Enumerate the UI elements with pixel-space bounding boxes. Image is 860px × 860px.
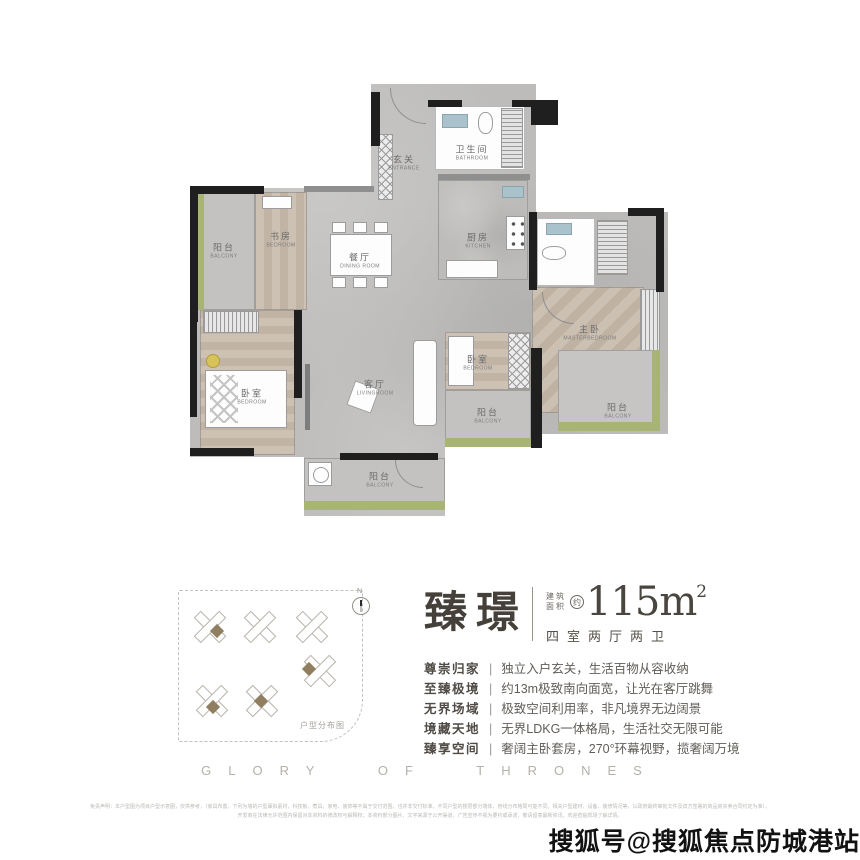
label-en: BALCONY xyxy=(210,254,237,259)
wall-segment xyxy=(190,186,198,322)
label-balcony-right: 阳台BALCONY xyxy=(602,401,634,420)
decor-plant-icon xyxy=(206,354,220,368)
building-icon xyxy=(192,682,232,720)
label-zh: 餐厅 xyxy=(337,251,384,264)
label-zh: 卫生间 xyxy=(453,143,491,156)
label-zh: 客厅 xyxy=(353,378,396,391)
label-master: 主卧MASTERBEDROOM xyxy=(559,323,622,342)
master-wardrobe xyxy=(640,289,660,351)
area-prefix-top: 建筑 xyxy=(546,592,566,602)
label-en: BALCONY xyxy=(474,419,501,424)
area-prefix: 建筑 面积 xyxy=(546,592,566,612)
bg-mask xyxy=(190,84,371,188)
feature-tag: 境藏天地 xyxy=(424,718,480,737)
unit-info: 臻璟 建筑 面积 约 115m 2 四室两厅两卫 尊崇归家 | 独立入 xyxy=(424,582,744,758)
balcony-right-planter-r xyxy=(652,350,660,431)
label-en: BATHROOM xyxy=(456,156,488,161)
bedroom-mid-wardrobe xyxy=(508,333,530,389)
kitchen-sink-icon xyxy=(502,186,524,198)
bedroom-left-wardrobe xyxy=(203,311,259,333)
feature-row: 臻享空间 | 奢阔主卧套房，270°环幕视野，揽奢阔万境 xyxy=(424,738,744,758)
label-balcony-left: 阳台BALCONY xyxy=(208,241,240,260)
feature-desc: 无界LDKG一体格局，生活社交无限可能 xyxy=(501,718,723,737)
bg-mask xyxy=(190,457,304,519)
feature-desc: 约13m极致南向面宽，让光在客厅跳舞 xyxy=(501,678,713,697)
compass-north-label: N xyxy=(357,588,362,595)
area-prefix-bottom: 面积 xyxy=(546,602,566,612)
label-en: ENTRANCE xyxy=(388,166,419,171)
page: 玄关ENTRANCE 卫生间BATHROOM 阳台BALCONY 书房BEDRO… xyxy=(0,0,860,860)
wall-segment xyxy=(529,212,537,290)
ensuite-shower-area xyxy=(597,220,628,275)
floor-plan: 玄关ENTRANCE 卫生间BATHROOM 阳台BALCONY 书房BEDRO… xyxy=(190,84,670,519)
feature-separator: | xyxy=(489,702,492,716)
room-study xyxy=(255,192,307,310)
label-en: BEDROOM xyxy=(237,400,266,405)
feature-desc: 奢阔主卧套房，270°环幕视野，揽奢阔万境 xyxy=(501,738,739,757)
wall-segment xyxy=(656,208,664,292)
chair-icon xyxy=(353,277,367,288)
toilet-icon xyxy=(478,112,493,134)
desk-icon xyxy=(262,196,292,209)
unit-name: 臻璟 xyxy=(424,592,528,635)
label-en: BALCONY xyxy=(604,414,631,419)
feature-separator: | xyxy=(489,722,492,736)
label-en: DINING ROOM xyxy=(340,264,380,269)
slogan: GLORY OF THRONES xyxy=(0,763,860,778)
disclaimer: 免责声明：本户型图为项目户型示意图，仅供参考，（家具布置、下列为墙的户型摹拟素材… xyxy=(70,803,790,821)
label-dining: 餐厅DINING ROOM xyxy=(337,251,384,270)
label-bathroom: 卫生间BATHROOM xyxy=(453,143,491,162)
building-icon xyxy=(190,608,230,646)
label-zh: 阳台 xyxy=(602,401,634,414)
feature-tag: 至臻极境 xyxy=(424,678,480,697)
building-icon xyxy=(240,608,280,646)
washer-drum-icon xyxy=(313,467,329,483)
shower-area xyxy=(501,108,523,168)
wall-segment xyxy=(531,100,558,125)
feature-tag: 臻享空间 xyxy=(424,738,480,757)
label-zh: 卧室 xyxy=(461,353,496,366)
wall-segment xyxy=(190,448,254,456)
wall-segment xyxy=(190,320,197,417)
compass-needle xyxy=(360,600,362,612)
balcony-bottom-planter xyxy=(304,501,445,510)
wall-segment xyxy=(428,100,462,107)
bg-mask xyxy=(445,447,531,519)
feature-tag: 尊崇归家 xyxy=(424,658,480,677)
label-zh: 主卧 xyxy=(559,323,622,336)
chair-icon xyxy=(353,222,367,233)
feature-row: 境藏天地 | 无界LDKG一体格局，生活社交无限可能 xyxy=(424,718,744,738)
chair-icon xyxy=(374,277,388,288)
balcony-mid-planter xyxy=(445,438,531,447)
disclaimer-line1: 免责声明：本户型图为项目户型示意图，仅供参考，（家具布置、下列为墙的户型摹拟素材… xyxy=(70,803,790,812)
unit-layout: 四室两厅两卫 xyxy=(546,626,707,645)
area-row: 建筑 面积 约 115m 2 xyxy=(546,582,707,622)
stove-icon xyxy=(506,216,525,250)
label-balcony-mid: 阳台BALCONY xyxy=(472,406,504,425)
north-compass-icon xyxy=(352,597,370,615)
sink-icon xyxy=(442,114,468,128)
feature-separator: | xyxy=(489,742,492,756)
label-bedroom-mid: 卧室BEDROOM xyxy=(461,353,496,372)
label-en: BEDROOM xyxy=(463,366,492,371)
label-zh: 阳台 xyxy=(472,406,504,419)
feature-desc: 极致空间利用率，非凡境界无边阔景 xyxy=(501,698,701,717)
site-plan-label: 户型分布图 xyxy=(300,720,345,731)
tv-console-icon xyxy=(305,364,310,430)
label-en: BALCONY xyxy=(366,483,393,488)
label-zh: 厨房 xyxy=(463,231,493,244)
feature-row: 至臻极境 | 约13m极致南向面宽，让光在客厅跳舞 xyxy=(424,678,744,698)
feature-separator: | xyxy=(489,662,492,676)
feature-separator: | xyxy=(489,682,492,696)
building-icon xyxy=(292,608,332,646)
label-zh: 玄关 xyxy=(385,153,422,166)
wall-segment-gray xyxy=(304,186,374,192)
label-bedroom-left: 卧室BEDROOM xyxy=(235,387,270,406)
label-zh: 阳台 xyxy=(208,241,240,254)
label-living: 客厅LIVINGROOM xyxy=(353,378,396,397)
label-en: LIVINGROOM xyxy=(357,391,394,396)
area-block: 建筑 面积 约 115m 2 四室两厅两卫 xyxy=(546,582,707,645)
building-icon xyxy=(242,682,282,720)
label-en: KITCHEN xyxy=(465,244,490,249)
label-entrance: 玄关ENTRANCE xyxy=(385,153,422,172)
feature-row: 尊崇归家 | 独立入户玄关，生活百物从容收纳 xyxy=(424,658,744,678)
wall-segment xyxy=(294,310,302,398)
sofa-icon xyxy=(413,340,437,426)
wall-segment xyxy=(371,92,380,146)
label-zh: 阳台 xyxy=(364,470,396,483)
chair-icon xyxy=(332,222,346,233)
label-en: BEDROOM xyxy=(266,243,295,248)
area-value: 115m xyxy=(586,582,696,622)
watermark: 搜狐号@搜狐焦点防城港站 xyxy=(549,822,860,858)
ensuite-toilet-icon xyxy=(542,246,566,260)
wall-segment xyxy=(531,348,542,448)
label-balcony-bottom: 阳台BALCONY xyxy=(364,470,396,489)
label-zh: 卧室 xyxy=(235,387,270,400)
approx-badge: 约 xyxy=(570,595,584,609)
building-icon xyxy=(300,652,340,690)
label-en: MASTERBEDROOM xyxy=(563,336,616,341)
bg-mask xyxy=(528,434,670,519)
wall-segment xyxy=(340,453,438,460)
divider xyxy=(532,587,533,641)
feature-desc: 独立入户玄关，生活百物从容收纳 xyxy=(501,658,689,677)
area-superscript: 2 xyxy=(696,584,707,601)
label-study: 书房BEDROOM xyxy=(264,230,299,249)
disclaimer-line2: 开发商在法律允许范围内保留对本资料的修改权与解释权；本资料部分图片、文字来源于公… xyxy=(70,812,790,821)
unit-header: 臻璟 建筑 面积 约 115m 2 四室两厅两卫 xyxy=(424,582,744,645)
ensuite-sink-icon xyxy=(546,223,572,235)
label-zh: 书房 xyxy=(264,230,299,243)
chair-icon xyxy=(374,222,388,233)
feature-list: 尊崇归家 | 独立入户玄关，生活百物从容收纳 至臻极境 | 约13m极致南向面宽… xyxy=(424,658,744,758)
wall-segment-gray xyxy=(438,174,530,180)
kitchen-island-icon xyxy=(446,260,498,278)
feature-tag: 无界场域 xyxy=(424,698,480,717)
chair-icon xyxy=(332,277,346,288)
label-kitchen: 厨房KITCHEN xyxy=(463,231,493,250)
bg-mask xyxy=(190,516,670,519)
wall-segment xyxy=(190,186,264,194)
feature-row: 无界场域 | 极致空间利用率，非凡境界无边阔景 xyxy=(424,698,744,718)
balcony-right-planter-b xyxy=(558,422,660,431)
